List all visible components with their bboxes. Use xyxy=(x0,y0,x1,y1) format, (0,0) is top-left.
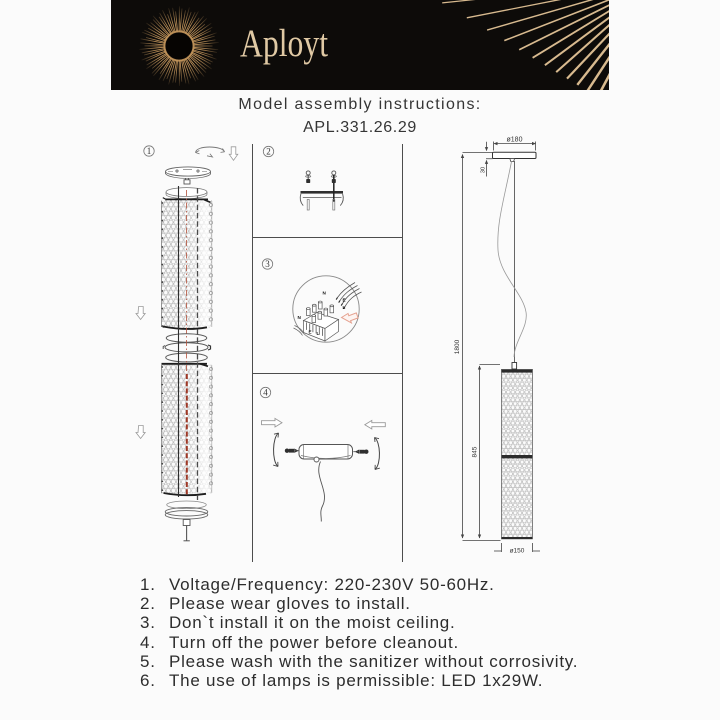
svg-text:N: N xyxy=(323,291,327,296)
svg-text:845: 845 xyxy=(471,446,478,457)
svg-text:1: 1 xyxy=(147,146,152,156)
svg-text:2: 2 xyxy=(266,147,271,157)
svg-text:ø180: ø180 xyxy=(507,137,523,144)
svg-text:4: 4 xyxy=(263,388,268,398)
svg-text:1800: 1800 xyxy=(454,339,461,354)
svg-text:E: E xyxy=(309,330,312,335)
svg-text:E: E xyxy=(343,298,346,303)
svg-text:L: L xyxy=(343,305,346,310)
svg-text:ø150: ø150 xyxy=(510,548,525,555)
svg-text:L: L xyxy=(317,331,320,336)
svg-text:3: 3 xyxy=(265,259,270,269)
svg-text:N: N xyxy=(298,315,302,320)
svg-text:30: 30 xyxy=(481,167,487,173)
